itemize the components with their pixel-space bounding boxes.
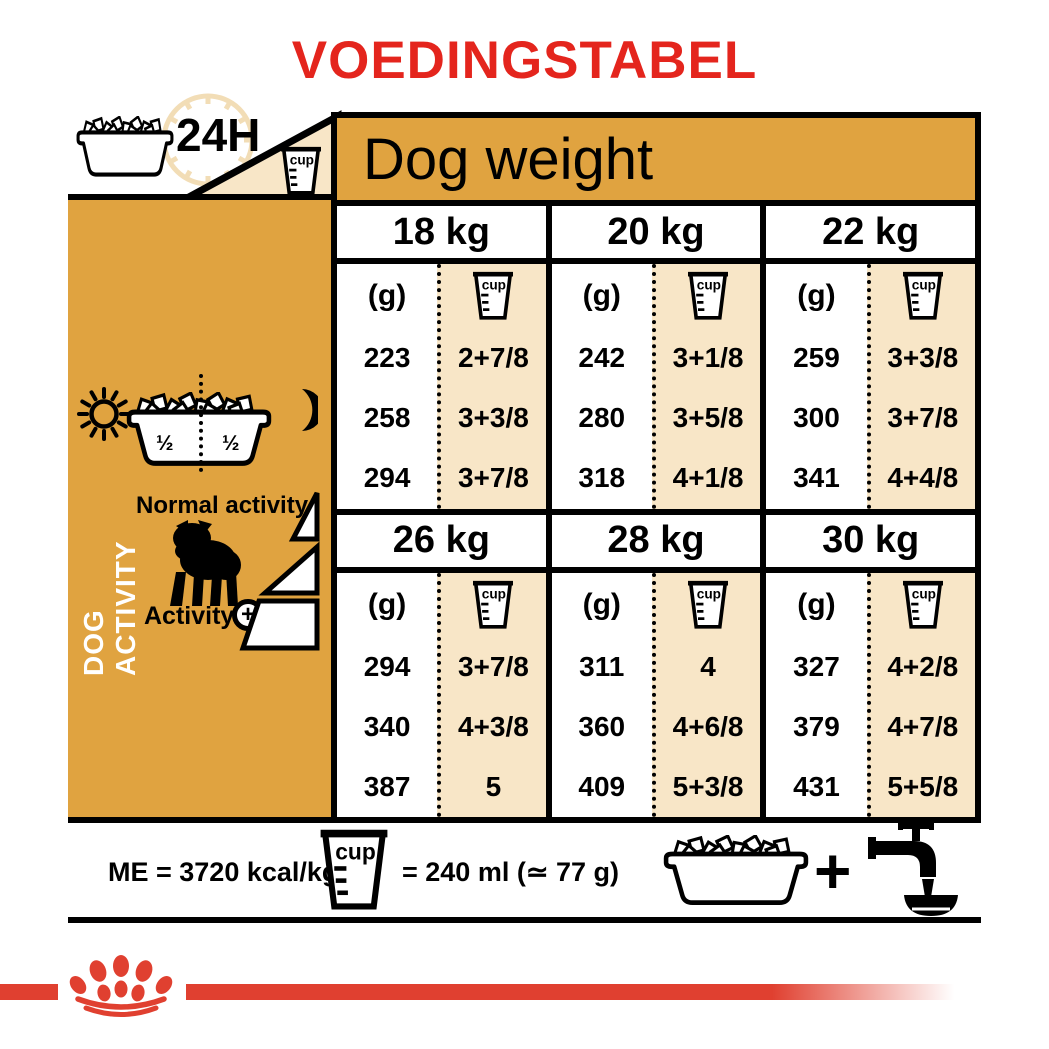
dog-activity-vertical-label: DOG ACTIVITY bbox=[78, 482, 142, 676]
grams-value: 341 bbox=[766, 448, 866, 508]
cup-equivalence-label: = 240 ml (≃ 77 g) bbox=[402, 857, 619, 888]
weight-label: 30 kg bbox=[766, 515, 975, 573]
weight-row-2: 26 kg (g) 294 340 387 3+7/8 4+3/8 bbox=[337, 509, 975, 818]
activity-stairs-icon bbox=[240, 488, 322, 653]
cups-column: 3+1/8 3+5/8 4+1/8 bbox=[652, 264, 761, 509]
grams-value: 431 bbox=[766, 757, 866, 817]
grams-header: (g) bbox=[337, 264, 437, 328]
weight-body: (g) 294 340 387 3+7/8 4+3/8 5 bbox=[337, 573, 546, 818]
cups-value: 3+7/8 bbox=[441, 637, 546, 697]
weight-label: 28 kg bbox=[552, 515, 761, 573]
grams-column: (g) 327 379 431 bbox=[766, 573, 866, 818]
weight-label: 20 kg bbox=[552, 206, 761, 264]
grams-header: (g) bbox=[766, 573, 866, 637]
grams-value: 311 bbox=[552, 637, 652, 697]
moon-icon bbox=[278, 388, 318, 432]
weight-block-22kg: 22 kg (g) 259 300 341 3+3/8 3+7/8 bbox=[760, 206, 975, 509]
grams-column: (g) 259 300 341 bbox=[766, 264, 866, 509]
cups-value: 5+5/8 bbox=[871, 757, 976, 817]
cup-header bbox=[656, 573, 761, 637]
grams-value: 409 bbox=[552, 757, 652, 817]
grams-value: 379 bbox=[766, 697, 866, 757]
cups-value: 4+3/8 bbox=[441, 697, 546, 757]
brand-band-right bbox=[186, 984, 978, 1000]
weight-block-20kg: 20 kg (g) 242 280 318 3+1/8 3+5/8 bbox=[546, 206, 761, 509]
cups-value: 4+7/8 bbox=[871, 697, 976, 757]
cups-column: 4+2/8 4+7/8 5+5/8 bbox=[867, 573, 976, 818]
cups-column: 4 4+6/8 5+3/8 bbox=[652, 573, 761, 818]
cups-column: 3+7/8 4+3/8 5 bbox=[437, 573, 546, 818]
measuring-cup-icon bbox=[688, 271, 728, 321]
grams-column: (g) 294 340 387 bbox=[337, 573, 437, 818]
cups-value: 5 bbox=[441, 757, 546, 817]
dog-activity-panel: ½ ½ DOG ACTIVITY Normal activity Activit… bbox=[68, 194, 331, 823]
grams-value: 300 bbox=[766, 388, 866, 448]
plus-icon: + bbox=[814, 839, 851, 903]
grams-value: 223 bbox=[337, 328, 437, 388]
weight-block-30kg: 30 kg (g) 327 379 431 4+2/8 4+7/8 bbox=[760, 515, 975, 818]
voedingstabel-page: VOEDINGSTABEL 24H Dog weight 1 bbox=[0, 0, 1049, 1049]
portion-divider-line bbox=[199, 374, 203, 472]
measuring-cup-icon bbox=[903, 271, 943, 321]
food-bowl-icon bbox=[74, 116, 176, 180]
measuring-cup-icon bbox=[473, 271, 513, 321]
grams-value: 360 bbox=[552, 697, 652, 757]
grams-value: 259 bbox=[766, 328, 866, 388]
cups-column: 2+7/8 3+3/8 3+7/8 bbox=[437, 264, 546, 509]
weight-block-18kg: 18 kg (g) 223 258 294 2+7/8 3+3/8 bbox=[337, 206, 546, 509]
grams-value: 280 bbox=[552, 388, 652, 448]
measuring-cup-icon bbox=[903, 580, 943, 630]
grams-value: 340 bbox=[337, 697, 437, 757]
measuring-cup-icon bbox=[281, 146, 321, 196]
cups-column: 3+3/8 3+7/8 4+4/8 bbox=[867, 264, 976, 509]
grams-value: 387 bbox=[337, 757, 437, 817]
cups-value: 4 bbox=[656, 637, 761, 697]
grams-header: (g) bbox=[766, 264, 866, 328]
me-kcal-label: ME = 3720 kcal/kg bbox=[108, 857, 338, 888]
weight-block-26kg: 26 kg (g) 294 340 387 3+7/8 4+3/8 bbox=[337, 515, 546, 818]
measuring-cup-icon bbox=[318, 829, 390, 911]
water-tap-icon bbox=[868, 823, 960, 917]
weight-body: (g) 242 280 318 3+1/8 3+5/8 4+1/8 bbox=[552, 264, 761, 509]
half-portion-right: ½ bbox=[222, 432, 240, 456]
24h-label: 24H bbox=[176, 108, 260, 162]
grams-value: 318 bbox=[552, 448, 652, 508]
grams-header: (g) bbox=[552, 573, 652, 637]
activity-label: Activity bbox=[144, 602, 234, 631]
cups-value: 3+3/8 bbox=[441, 388, 546, 448]
page-title: VOEDINGSTABEL bbox=[0, 30, 1049, 91]
half-portion-left: ½ bbox=[156, 432, 174, 456]
cups-value: 3+7/8 bbox=[871, 388, 976, 448]
measuring-cup-icon bbox=[473, 580, 513, 630]
cup-header bbox=[656, 264, 761, 328]
cups-value: 4+6/8 bbox=[656, 697, 761, 757]
cup-header bbox=[441, 264, 546, 328]
weight-label: 26 kg bbox=[337, 515, 546, 573]
cups-value: 3+7/8 bbox=[441, 448, 546, 508]
weight-body: (g) 259 300 341 3+3/8 3+7/8 4+4/8 bbox=[766, 264, 975, 509]
cups-value: 3+1/8 bbox=[656, 328, 761, 388]
grams-value: 327 bbox=[766, 637, 866, 697]
cups-value: 4+2/8 bbox=[871, 637, 976, 697]
weight-label: 22 kg bbox=[766, 206, 975, 264]
cups-value: 4+4/8 bbox=[871, 448, 976, 508]
weight-body: (g) 311 360 409 4 4+6/8 5+3/8 bbox=[552, 573, 761, 818]
cups-value: 4+1/8 bbox=[656, 448, 761, 508]
grams-column: (g) 242 280 318 bbox=[552, 264, 652, 509]
cup-header bbox=[441, 573, 546, 637]
grams-value: 294 bbox=[337, 637, 437, 697]
weight-body: (g) 223 258 294 2+7/8 3+3/8 3+7/8 bbox=[337, 264, 546, 509]
weight-block-28kg: 28 kg (g) 311 360 409 4 4+6/8 5+3 bbox=[546, 515, 761, 818]
weight-row-1: 18 kg (g) 223 258 294 2+7/8 3+3/8 bbox=[337, 206, 975, 509]
grams-column: (g) 311 360 409 bbox=[552, 573, 652, 818]
royal-canin-crown-logo bbox=[62, 955, 180, 1021]
footer-strip: ME = 3720 kcal/kg = 240 ml (≃ 77 g) + bbox=[68, 823, 981, 923]
weight-label: 18 kg bbox=[337, 206, 546, 264]
weight-body: (g) 327 379 431 4+2/8 4+7/8 5+5/8 bbox=[766, 573, 975, 818]
brand-band-left bbox=[0, 984, 58, 1000]
feeding-table: Dog weight 18 kg (g) 223 258 294 2+7 bbox=[331, 112, 981, 823]
bulldog-icon bbox=[164, 520, 244, 608]
dog-weight-header: Dog weight bbox=[337, 118, 975, 206]
grams-header: (g) bbox=[337, 573, 437, 637]
grams-header: (g) bbox=[552, 264, 652, 328]
cups-value: 5+3/8 bbox=[656, 757, 761, 817]
cup-header bbox=[871, 264, 976, 328]
grams-value: 242 bbox=[552, 328, 652, 388]
grams-column: (g) 223 258 294 bbox=[337, 264, 437, 509]
food-bowl-icon bbox=[660, 835, 812, 909]
grams-value: 294 bbox=[337, 448, 437, 508]
cups-value: 2+7/8 bbox=[441, 328, 546, 388]
grams-value: 258 bbox=[337, 388, 437, 448]
cups-value: 3+5/8 bbox=[656, 388, 761, 448]
cup-header bbox=[871, 573, 976, 637]
measuring-cup-icon bbox=[688, 580, 728, 630]
cups-value: 3+3/8 bbox=[871, 328, 976, 388]
